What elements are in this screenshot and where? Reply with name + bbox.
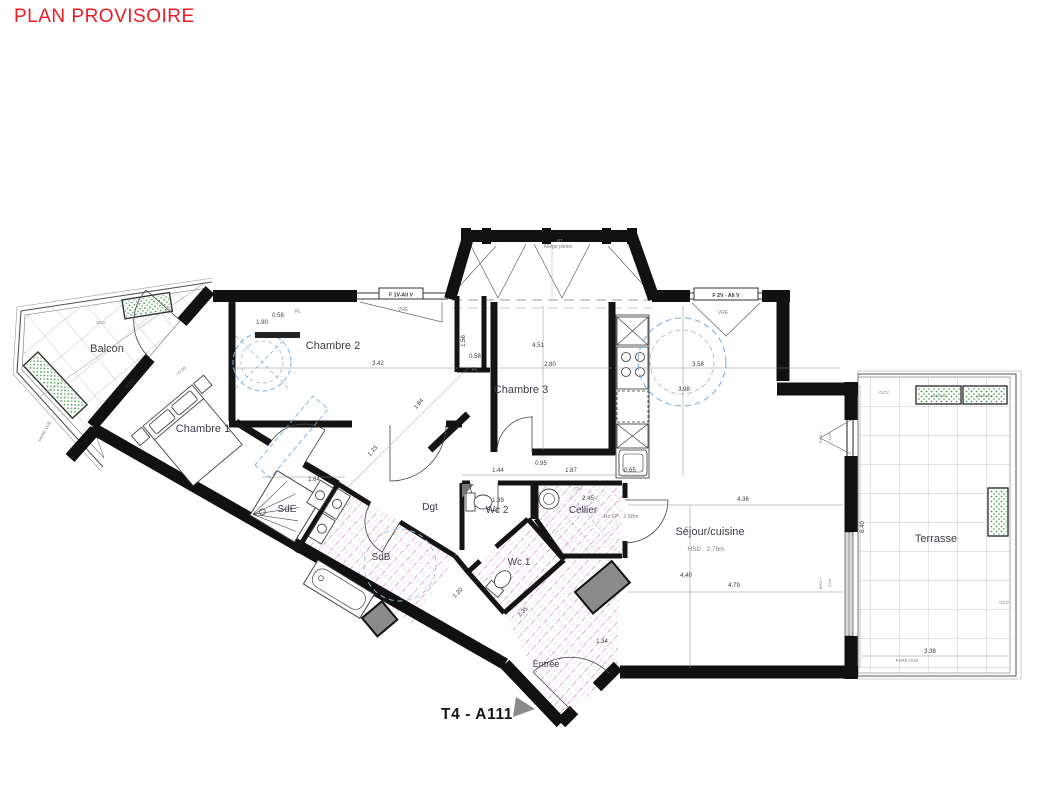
annotation-parevue-balc: PARE-VUE <box>37 420 52 442</box>
table-chambre2 <box>233 333 291 391</box>
radiator-chambre2 <box>255 332 300 338</box>
annotation-h304-top: 3.04 <box>827 432 832 441</box>
room-label-terrasse: Terrasse <box>915 533 957 545</box>
annotation-gcv-terrasse1: GCV <box>879 390 889 395</box>
annotation-vre-right: VRE <box>718 310 729 316</box>
annotation-allege-pleine: Allège pleine <box>544 244 573 250</box>
dimension-label-16: 4.79 <box>728 583 740 589</box>
dimension-label-19: 1.64 <box>308 477 320 483</box>
window-type-label-window-f1v: F 1V-All V <box>389 293 413 299</box>
annotation-pl-top: PL <box>295 309 301 315</box>
floor-plan-drawing: BalconChambre 1Chambre 2Chambre 3SdESdBD… <box>0 0 1049 800</box>
dimension-label-14: 4.36 <box>737 497 749 503</box>
room-label-wc1: Wc 1 <box>508 557 531 568</box>
floor-plan-canvas: PLAN PROVISOIRE T4 - A111 <box>0 0 1049 800</box>
room-label-chambre2: Chambre 2 <box>306 340 360 352</box>
dimension-label-8: 3.58 <box>692 362 704 368</box>
room-label-balcon: Balcon <box>90 343 124 355</box>
window-type-label-window-f2v: F 2V - All V <box>713 293 740 299</box>
dimension-label-9: 3.98 <box>678 387 690 393</box>
dimension-label-7: 2.80 <box>544 362 556 368</box>
dimension-label-2: 0.58 <box>272 313 284 319</box>
annotation-bso-top: BSO + <box>818 430 823 443</box>
annotation-h304-bottom: 3.04 <box>827 578 832 587</box>
annotation-vre-left: VRE <box>398 307 409 313</box>
dimension-label-5: 0.58 <box>469 354 481 360</box>
dimension-label-22: 1.39 <box>492 498 504 504</box>
dimension-label-6: 4.51 <box>532 343 544 349</box>
dimension-label-13: 0.65 <box>624 468 636 474</box>
room-label-sejour: Séjour/cuisine <box>675 526 744 538</box>
annotation-hsfp-cellier: Hs FP : 2.58m <box>603 514 638 520</box>
dimension-label-17: 6.40 <box>860 521 866 533</box>
annotation-gcv-terrasse2: GCV <box>999 600 1009 605</box>
dimension-label-18: 3.38 <box>924 649 936 655</box>
dimension-label-11: 1.44 <box>492 468 504 474</box>
room-label-dgt: Dgt <box>422 502 438 513</box>
dimension-label-15: 4.40 <box>680 573 692 579</box>
room-label-wc2: Wc 2 <box>486 505 509 516</box>
dimension-label-3: 3.42 <box>372 361 384 367</box>
dimension-label-23: 2.45 <box>582 496 594 502</box>
room-label-cellier: Cellier <box>569 505 598 516</box>
dimension-label-20: 1.23 <box>367 444 380 457</box>
room-label-sde: SdE <box>278 504 297 515</box>
annotation-cbc-cellier: Cbc <box>574 486 583 491</box>
room-label-chambre1: Chambre 1 <box>176 423 230 435</box>
annotation-parevue-terr: PARE-VUE <box>896 658 919 663</box>
dimension-label-24: 1.34 <box>596 639 608 645</box>
dimension-label-10: 0.95 <box>535 461 547 467</box>
dimension-label-21: 1.84 <box>413 397 426 410</box>
annotation-jardiniere-2: jardinière <box>976 393 994 398</box>
terrace-area <box>858 371 1021 679</box>
annotation-bt-marker: BT <box>557 238 563 243</box>
annotation-scv-balcon: SCV <box>96 320 105 325</box>
dimension-label-4: 1.56 <box>461 335 467 347</box>
room-label-sdb: SdB <box>372 552 391 563</box>
annotation-pl-column: PL <box>472 367 478 373</box>
dimension-label-26: 1.20 <box>452 587 465 600</box>
annotation-hsd-sejour: HSD : 2.76m <box>687 546 724 553</box>
dimension-label-12: 1.87 <box>565 468 577 474</box>
annotation-level-balcon: +0.09 <box>175 365 187 376</box>
bay-mullions <box>461 228 637 244</box>
annotation-jardiniere-1: jardinière <box>930 393 948 398</box>
room-label-chambre3: Chambre 3 <box>494 384 548 396</box>
planter-terrace-right <box>988 488 1008 536</box>
annotation-bso-bottom: BSO + <box>818 576 823 589</box>
dimension-label-1: 1.90 <box>256 320 268 326</box>
basin-wc2 <box>539 489 559 509</box>
room-label-entree: Entrée <box>533 659 560 669</box>
